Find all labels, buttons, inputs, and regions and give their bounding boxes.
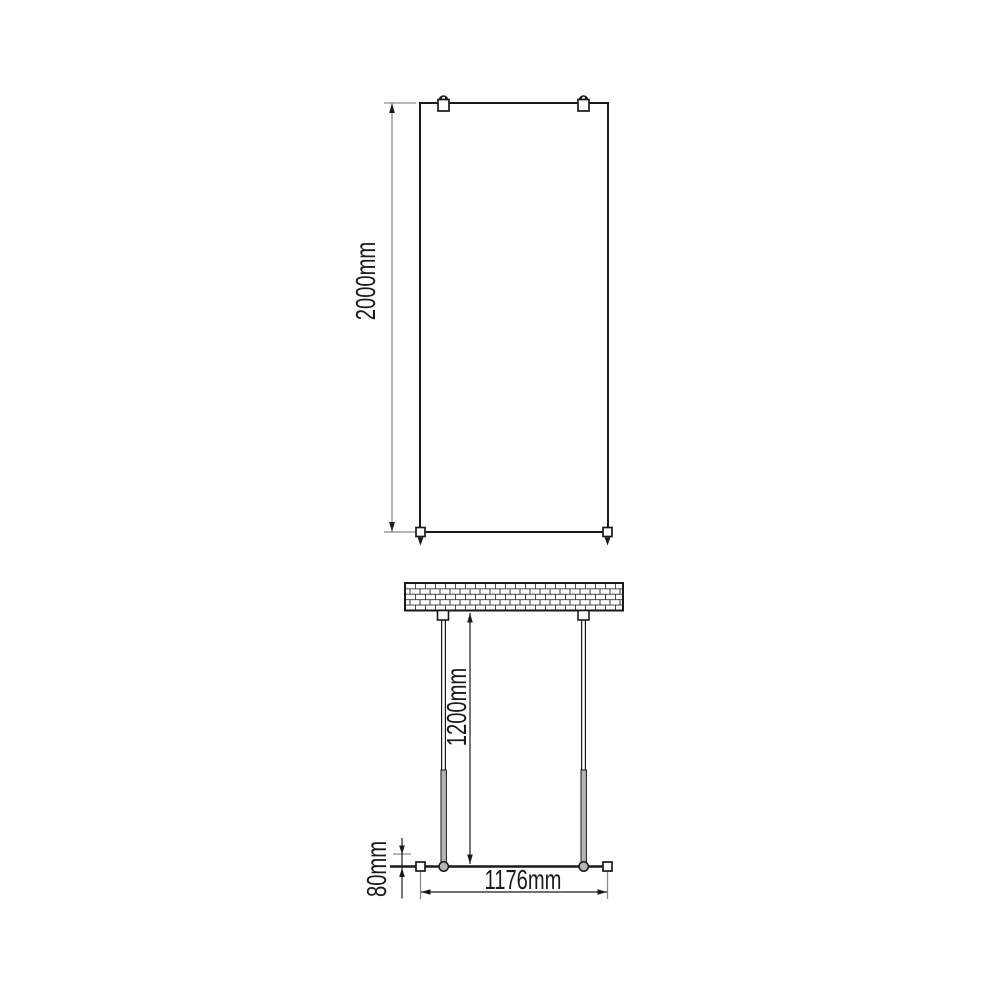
technical-drawing-canvas: 2000mm 1200mm 80mm 1176mm — [0, 0, 1000, 1000]
wall-bracket-left — [438, 611, 449, 621]
front-view — [384, 95, 612, 545]
wall-hatch — [405, 583, 623, 611]
glass-panel-outline — [420, 103, 608, 532]
bar-length-dimension-label: 1200mm — [443, 668, 471, 746]
height-dimension — [384, 103, 416, 532]
plan-view — [390, 583, 623, 899]
bar-connector-right — [579, 862, 588, 871]
bar-connector-left — [439, 862, 448, 871]
depth-dimension-label: 80mm — [363, 841, 391, 897]
end-cap-left — [416, 862, 425, 871]
bottom-anchor-right — [603, 528, 612, 546]
glass-clamp-left — [438, 95, 449, 111]
glass-clamp-right — [578, 95, 589, 111]
end-cap-right — [603, 862, 612, 871]
drawing-linework — [0, 0, 1000, 1000]
depth-dimension — [393, 838, 411, 899]
width-dimension-label: 1176mm — [485, 866, 562, 894]
wall-bracket-right — [578, 611, 589, 621]
support-bar-right — [581, 620, 587, 864]
bottom-anchor-left — [416, 528, 425, 546]
height-dimension-label: 2000mm — [352, 242, 380, 320]
